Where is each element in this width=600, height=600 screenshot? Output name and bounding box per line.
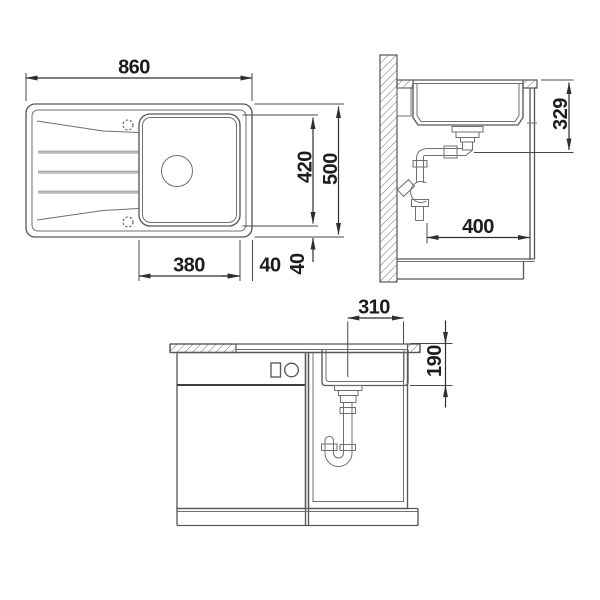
dim-label-400: 400 xyxy=(462,216,494,238)
drain-trap-front xyxy=(322,386,363,467)
dim-label-860: 860 xyxy=(118,57,150,79)
drain-hole xyxy=(162,156,193,187)
drainboard-edge-bottom xyxy=(37,209,139,221)
bowl-inner-line xyxy=(143,118,237,223)
technical-drawing: 860 500 420 380 40 xyxy=(0,0,600,600)
dim-label-380: 380 xyxy=(173,255,205,277)
appliance-cabinet-front xyxy=(177,353,306,509)
dim-drain-height: 329 xyxy=(474,80,574,153)
dim-label-190: 190 xyxy=(424,345,446,377)
bowl-front-inner xyxy=(326,350,404,382)
dim-label-40-h: 40 xyxy=(259,255,281,277)
dim-bottom-margin: 40 xyxy=(287,238,313,275)
bowl-section-outer xyxy=(413,84,523,126)
countertop-front xyxy=(170,344,420,353)
dim-overall-width: 860 xyxy=(26,57,252,102)
plinth-front xyxy=(177,509,418,526)
wall-batten xyxy=(397,88,411,116)
counter-section-left xyxy=(397,80,413,88)
drawing-canvas: 860 500 420 380 40 xyxy=(0,0,600,600)
dim-bowl-depth: 190 xyxy=(410,321,453,408)
dim-side-margin: 40 xyxy=(222,240,281,281)
dim-bowl-length: 420 xyxy=(243,115,319,226)
front-view: 310 190 xyxy=(170,297,453,527)
appliance-dial-icon xyxy=(285,363,299,377)
appliance-outline xyxy=(177,353,306,509)
bowl-front-outer xyxy=(322,350,408,386)
tap-hole-bottom xyxy=(123,217,133,227)
bowl-outline xyxy=(139,114,240,226)
sink-cabinet-front xyxy=(306,353,408,527)
wall-section xyxy=(380,55,397,282)
dim-wall-clearance: 400 xyxy=(427,216,530,244)
dim-label-500: 500 xyxy=(320,153,342,185)
dim-label-310: 310 xyxy=(358,297,390,319)
dim-label-40-v: 40 xyxy=(287,253,309,275)
dim-label-329: 329 xyxy=(550,98,572,130)
side-view: 329 400 xyxy=(380,55,574,282)
tap-hole-top xyxy=(123,120,133,130)
counter-section-right xyxy=(523,80,537,88)
bowl-section-inner xyxy=(417,84,519,122)
sink-cabinet-interior xyxy=(313,353,404,502)
dim-label-420: 420 xyxy=(295,151,317,183)
plan-view: 860 500 420 380 40 xyxy=(26,57,344,282)
sink-cabinet-outline xyxy=(309,353,408,509)
drain-trap-side xyxy=(397,127,483,221)
drainboard-grooves xyxy=(38,151,139,193)
dim-bowl-width: 380 xyxy=(139,240,240,281)
dim-drain-offset: 310 xyxy=(348,297,404,378)
appliance-button-icon xyxy=(271,363,281,377)
